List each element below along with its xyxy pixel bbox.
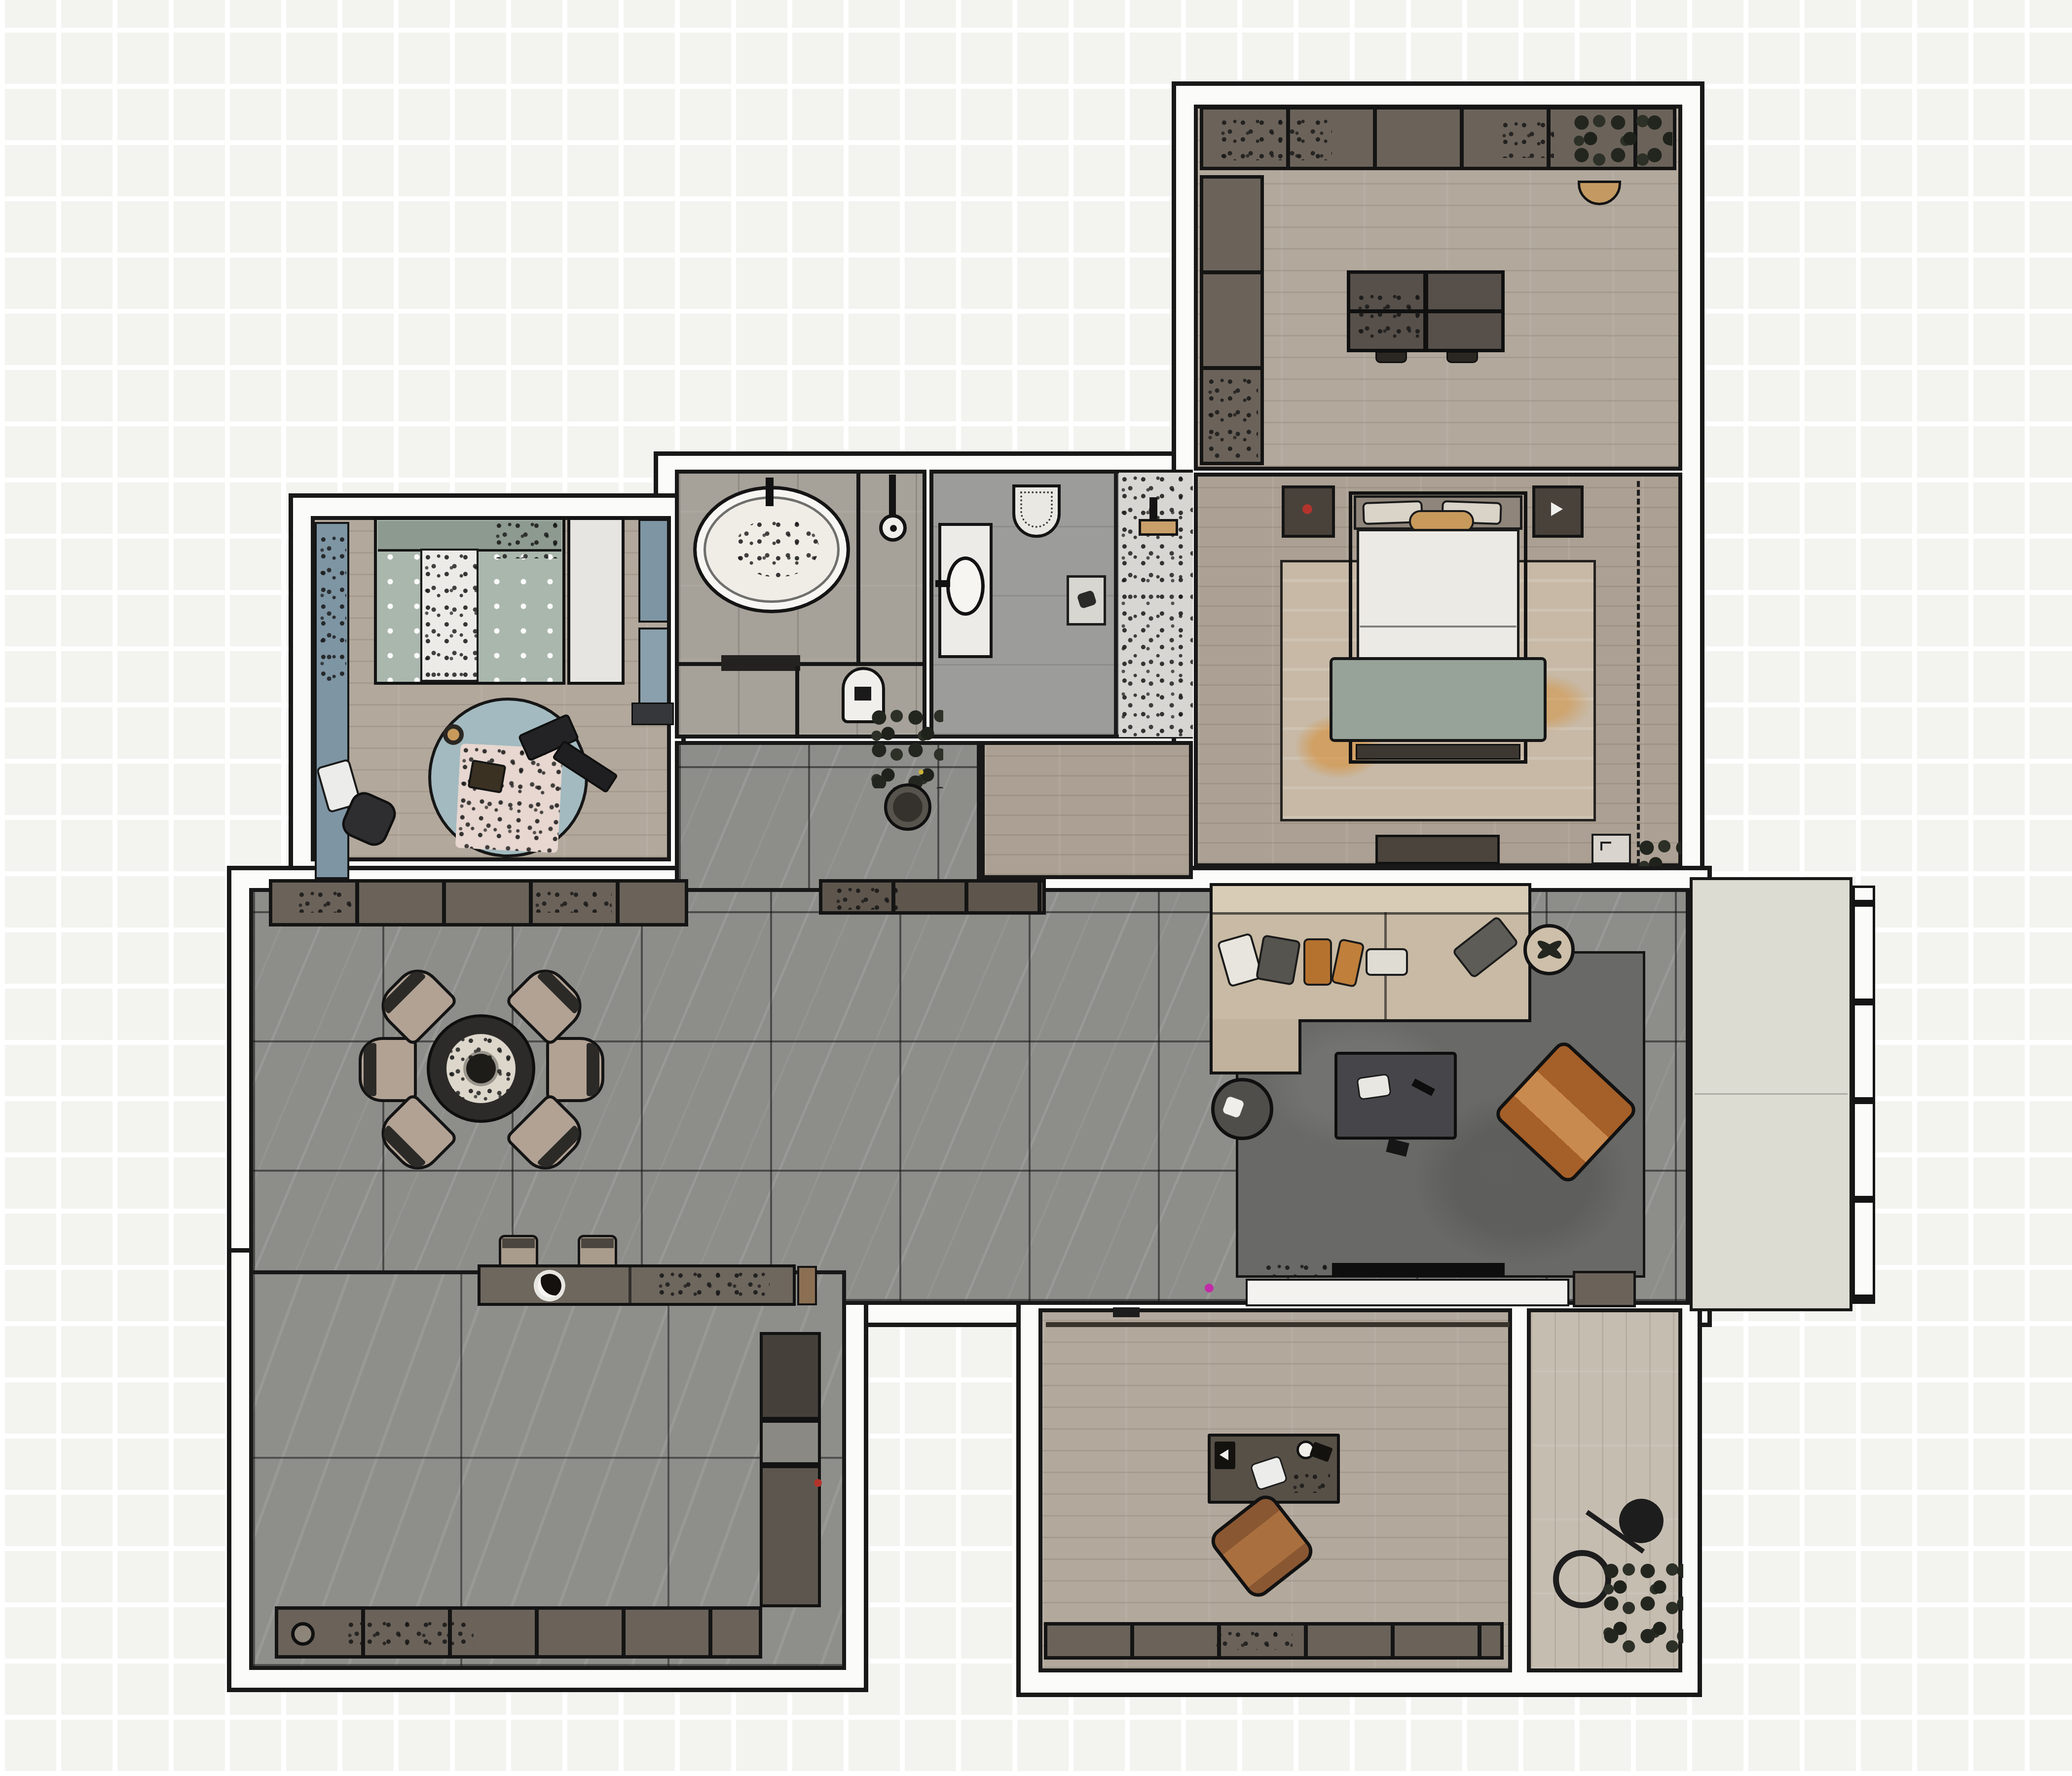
bathtub-water-dots: [735, 518, 819, 577]
master-foot-bench: [1356, 744, 1520, 760]
toilet-seat-dotted-ring: [1020, 491, 1053, 528]
sofa-pillow-gray: [1256, 934, 1301, 986]
corridor-plant-dot: [919, 770, 924, 775]
shower-head-dot: [890, 525, 897, 532]
sofa-pillow-white-small: [1366, 948, 1408, 976]
wc-basin-faucet: [935, 580, 950, 587]
kitchen-wood-shelf-end: [797, 1266, 817, 1305]
glass-partition-vertical: [856, 473, 860, 665]
den-cabinet-decor: [1214, 1628, 1293, 1650]
coffee-table: [1334, 1052, 1457, 1140]
shower-arm-icon: [889, 475, 896, 515]
tv-panel: [1332, 1263, 1505, 1277]
media-cabinet: [1573, 1271, 1636, 1307]
sofa-pillow-orange-1: [1303, 938, 1332, 986]
kitchen-tall-cabinet-2: [760, 1420, 821, 1465]
den-sliding-rail: [1046, 1322, 1510, 1327]
sideboard-decor-2: [533, 888, 612, 913]
bath-mat: [721, 655, 800, 671]
kitchen-cookware: [656, 1269, 770, 1299]
tv-soundbar-decor: [1263, 1261, 1327, 1278]
dining-chair-east: [546, 1037, 604, 1102]
nightstand-red-decor: [1302, 504, 1312, 514]
tub-faucet-icon: [766, 478, 774, 506]
island-utensils: [1356, 291, 1420, 340]
door-mat-glyph: [1600, 842, 1611, 851]
wardrobe-dashed-line: [1637, 481, 1640, 865]
boiler-display: [854, 687, 871, 701]
bath-divider-2: [795, 666, 799, 739]
master-door-mat: [1591, 834, 1631, 864]
desk-small-items: [1291, 1470, 1330, 1493]
corridor-plant-pot: [884, 783, 931, 831]
study-cabinet-decor-2: [1500, 118, 1554, 158]
duvet-fold-line: [1360, 626, 1517, 628]
dining-centerpiece: [466, 1054, 496, 1083]
kids-toy-box: [467, 759, 506, 793]
kids-toy-ring: [443, 724, 464, 745]
floor-plan: [0, 0, 2072, 1776]
kids-bed-toys: [493, 519, 562, 558]
master-corner-plant-icon: [1634, 835, 1681, 866]
nightstand-decor-icon: [1551, 502, 1563, 516]
den-plant-icon: [1598, 1558, 1683, 1654]
master-duvet: [1357, 529, 1519, 660]
kitchen-tall-cabinet-3: [760, 1465, 821, 1607]
kitchen-tall-cabinet-1: [760, 1332, 821, 1420]
kids-desk-items: [318, 533, 346, 681]
kids-teal-wall-panel-1: [638, 519, 669, 623]
floor-plan-canvas: { "app": {"title": "Apartment floor plan…: [0, 0, 2072, 1776]
kitchen-sink: [534, 1270, 565, 1301]
master-tv-console: [1375, 835, 1500, 864]
study-plant-icon: [1569, 110, 1672, 167]
coffee-table-book: [1356, 1073, 1392, 1101]
balcony-railing: [1852, 886, 1875, 1304]
den-wall-tick: [1113, 1307, 1140, 1317]
kitchen-cabinet-knob: [291, 1622, 315, 1646]
red-marker-dot: [814, 1479, 822, 1487]
kids-wall-shelf: [631, 703, 674, 725]
wc-basin: [946, 556, 985, 616]
kids-blanket-stripe: [420, 549, 479, 682]
corridor-plant-leaves: [866, 704, 943, 788]
shower-fixture-bar: [1139, 519, 1178, 536]
kitchen-cabinet-decor: [345, 1618, 474, 1648]
desk-triangle-icon: [1220, 1449, 1228, 1460]
kids-wardrobe: [567, 517, 625, 685]
corridor-wood-floor: [981, 741, 1193, 879]
kids-teal-wall-panel-2: [638, 628, 669, 704]
master-throw-blanket: [1330, 657, 1547, 742]
hall-cabinet-decor: [834, 884, 903, 910]
study-cabinet-decor: [1219, 116, 1332, 160]
tv-console: [1246, 1279, 1569, 1306]
kids-pink-blanket: [455, 743, 563, 853]
magenta-marker-dot: [1205, 1284, 1214, 1293]
sideboard-decor: [296, 888, 355, 913]
round-side-table: [1211, 1078, 1273, 1140]
island-stool-left: [1375, 351, 1407, 363]
sofa-chaise: [1210, 1019, 1301, 1074]
study-cabinet-plant-panel: [1206, 375, 1258, 458]
glass-partition-horizontal: [675, 662, 926, 666]
island-stool-right: [1446, 351, 1478, 363]
dining-chair-west: [359, 1037, 417, 1102]
shower-glass-screen: [1114, 473, 1118, 737]
balcony-mid-line: [1695, 1093, 1848, 1095]
